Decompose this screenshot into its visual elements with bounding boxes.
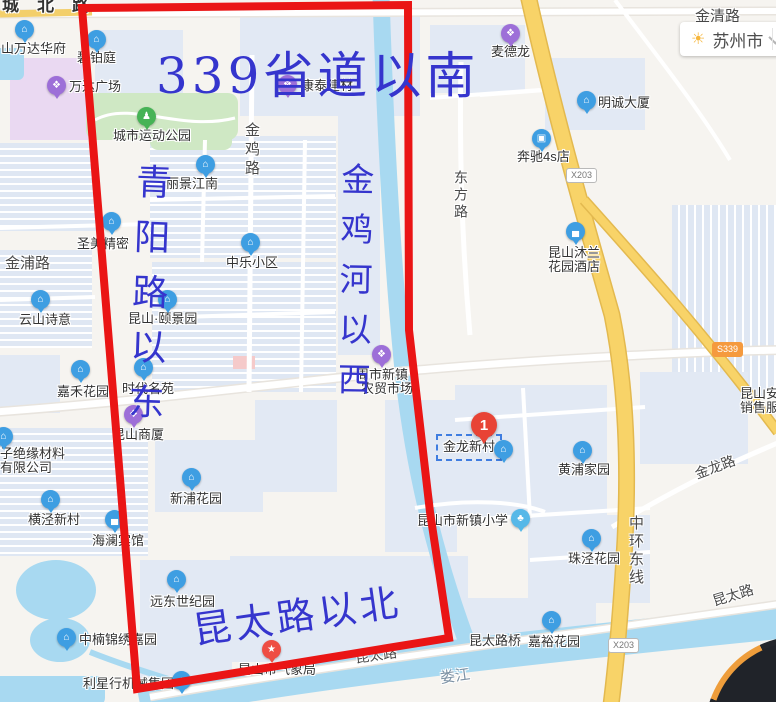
poi-label[interactable]: 销售服	[740, 401, 776, 415]
park-icon[interactable]: ♟	[137, 107, 156, 126]
building-glyph: ⌂	[63, 633, 69, 643]
estate-icon[interactable]: ⌂	[241, 233, 260, 252]
poi-label[interactable]: 昆太路桥	[469, 634, 521, 648]
marker-number: 1	[480, 417, 488, 434]
building-glyph: ⌂	[579, 446, 585, 456]
poi-label[interactable]: 利星行机械集团	[83, 677, 174, 691]
bag-glyph: ❖	[52, 81, 61, 91]
building-glyph: ⌂	[500, 445, 506, 455]
road-label-jinpu: 金浦路	[5, 252, 50, 273]
star-glyph: ★	[267, 645, 276, 655]
school-icon[interactable]: ♣	[511, 509, 530, 528]
bed-glyph: ▄	[111, 515, 118, 525]
poi-label[interactable]: 有限公司	[0, 461, 52, 475]
poi-label[interactable]: 昆山市新镇小学	[417, 514, 508, 528]
estate-icon[interactable]: ⌂	[182, 468, 201, 487]
poi-label[interactable]: 中楠锦绣嘉园	[79, 633, 157, 647]
estate-icon[interactable]: ⌂	[71, 360, 90, 379]
poi-label[interactable]: 山万达华府	[1, 42, 66, 56]
hotel-icon[interactable]: ▄	[566, 222, 585, 241]
river-label-loujiang: 娄江	[439, 663, 472, 688]
road-label-dongfang: 东方路	[451, 170, 471, 221]
building-glyph: ⌂	[37, 295, 43, 305]
road-label-jinji: 金鸡路	[241, 122, 262, 179]
road-label-zhonghuan: 中环东线	[625, 515, 646, 587]
route-badge-x203-top: X203	[566, 168, 597, 183]
road-label-top-clipped: 城北路	[2, 0, 107, 16]
poi-label[interactable]: 明诚大厦	[598, 96, 650, 110]
building-glyph: ⌂	[173, 575, 179, 585]
estate-icon[interactable]: ⌂	[31, 290, 50, 309]
building-glyph: ⌂	[202, 160, 208, 170]
poi-label[interactable]: 子绝缘材料	[0, 447, 65, 461]
estate-icon[interactable]: ⌂	[542, 611, 561, 630]
mall-icon[interactable]: ❖	[47, 76, 66, 95]
building-glyph: ⌂	[108, 217, 114, 227]
mall-icon[interactable]: ❖	[501, 24, 520, 43]
weather-widget[interactable]: ☀ 苏州市	[680, 22, 776, 56]
person-glyph: ♟	[142, 112, 151, 122]
building-glyph: ⌂	[0, 432, 6, 442]
estate-icon[interactable]: ⌂	[582, 529, 601, 548]
poi-label[interactable]: 万达广场	[69, 80, 121, 94]
estate-icon[interactable]: ⌂	[494, 440, 513, 459]
building-glyph: ⌂	[583, 96, 589, 106]
poi-label[interactable]: 花园酒店	[548, 260, 600, 274]
estate-icon[interactable]: ⌂	[196, 155, 215, 174]
estate-icon[interactable]: ⌂	[167, 570, 186, 589]
estate-icon[interactable]: ⌂	[577, 91, 596, 110]
poi-label[interactable]: 云山诗意	[19, 313, 71, 327]
poi-label[interactable]: 昆山安	[740, 387, 776, 401]
bag-glyph: ❖	[377, 350, 386, 360]
building-glyph: ⌂	[47, 495, 53, 505]
road-label-kuntai-1: 昆太路	[354, 642, 398, 668]
building-glyph: ⌂	[188, 473, 194, 483]
result-marker-1[interactable]: 1	[471, 412, 497, 438]
car-dealer-icon[interactable]: ▣	[532, 129, 551, 148]
poi-label[interactable]: 嘉禾花园	[57, 385, 109, 399]
annotation-north-of-kuntai: 昆太路以北	[189, 571, 405, 655]
building-glyph: ⌂	[247, 238, 253, 248]
estate-icon[interactable]: ⌂	[87, 30, 106, 49]
bed-glyph: ▄	[572, 227, 579, 237]
map-canvas[interactable]: 金清路 金鸡路 东方路 金龙路 中环东线 昆太路 昆太路 娄江 城北路 金浦路 …	[0, 0, 776, 702]
estate-icon[interactable]: ⌂	[573, 441, 592, 460]
sun-icon: ☀	[691, 29, 705, 49]
estate-icon[interactable]: ⌂	[0, 427, 13, 446]
poi-label[interactable]: 昆山市气象局	[238, 663, 316, 677]
road-label-jinlong: 金龙路	[692, 450, 738, 483]
car-glyph: ▣	[537, 134, 546, 144]
panorama-control[interactable]	[705, 636, 776, 702]
annotation-east-of-qingyang: 青阳路以东	[115, 162, 177, 439]
road-label-kuntai-2: 昆太路	[710, 579, 756, 610]
tree-glyph: ♣	[517, 514, 524, 524]
building-glyph: ⌂	[77, 365, 83, 375]
building-glyph: ⌂	[548, 616, 554, 626]
widget-divider	[772, 28, 773, 50]
building-glyph: ⌂	[178, 676, 184, 686]
estate-icon[interactable]: ⌂	[57, 628, 76, 647]
estate-icon[interactable]: ⌂	[15, 20, 34, 39]
route-badge-x203-bottom: X203	[608, 638, 639, 653]
estate-icon[interactable]: ⌂	[41, 490, 60, 509]
weather-city: 苏州市	[712, 27, 763, 52]
building-glyph: ⌂	[21, 25, 27, 35]
building-glyph: ⌂	[588, 534, 594, 544]
poi-label[interactable]: 城市运动公园	[113, 129, 191, 143]
estate-icon[interactable]: ⌂	[102, 212, 121, 231]
building-glyph: ⌂	[93, 35, 99, 45]
poi-label[interactable]: 新浦花园	[170, 492, 222, 506]
annotation-west-of-jinji: 金鸡河以西	[327, 162, 379, 413]
hotel-icon[interactable]: ▄	[105, 510, 124, 529]
bag-glyph: ❖	[506, 29, 515, 39]
wanda-mall-block	[10, 58, 88, 140]
estate-icon[interactable]: ⌂	[172, 671, 191, 690]
route-badge-s339: S339	[712, 342, 743, 357]
annotation-south-of-s339: 339省道以南	[156, 36, 479, 108]
